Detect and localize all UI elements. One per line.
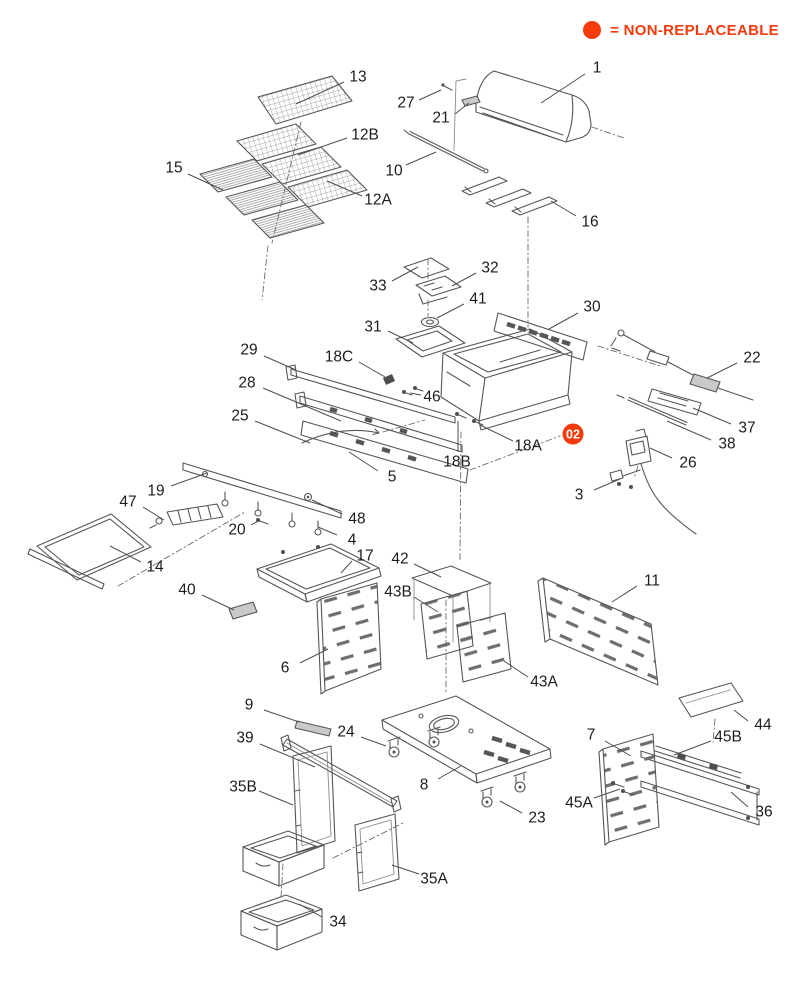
leader-line-26 [650, 448, 672, 458]
part-label-27: 27 [397, 95, 414, 112]
leader-line-19 [171, 473, 207, 486]
part-44-shelf-panel [679, 683, 743, 717]
part-23-casters [481, 772, 526, 807]
part-label-5: 5 [388, 469, 397, 486]
part-label-46: 46 [423, 389, 440, 406]
part-label-43A: 43A [530, 674, 558, 691]
part-label-20: 20 [228, 522, 246, 539]
part-label-6: 6 [281, 660, 290, 677]
part-5-control-panel-support [301, 421, 468, 483]
part-27-bolt [441, 83, 452, 90]
part-label-48: 48 [348, 511, 365, 528]
part-9-handle [295, 721, 331, 736]
part-label-15: 15 [165, 160, 182, 177]
part-3-electrode [610, 470, 640, 489]
part-label-18B: 18B [443, 454, 471, 471]
leader-line-18A [480, 425, 513, 441]
part-label-44: 44 [754, 717, 772, 734]
leader-line-10 [406, 152, 436, 165]
part-label-34: 34 [329, 914, 347, 931]
leader-line-20 [251, 520, 260, 525]
part-31-tray [396, 326, 465, 357]
part-33-lid [404, 258, 449, 278]
part-label-11: 11 [644, 573, 660, 590]
leader-line-8 [438, 766, 461, 779]
part-label-33: 33 [369, 278, 386, 295]
part-47-burner-tube [150, 504, 223, 528]
leader-line-35A [392, 865, 419, 874]
leader-line-38 [667, 421, 711, 440]
part-7-side-panel [599, 734, 659, 845]
part-18c-clip [383, 374, 395, 385]
non-replaceable-marker-label: 02 [566, 428, 580, 442]
part-38-rod [617, 395, 687, 425]
part-41-ring [422, 318, 439, 327]
part-48-grommet [305, 494, 312, 501]
part-label-19: 19 [147, 483, 164, 500]
part-label-38: 38 [718, 436, 735, 453]
leader-line-18C [359, 362, 385, 377]
part-label-3: 3 [575, 487, 584, 504]
part-label-12B: 12B [351, 127, 379, 144]
part-label-37: 37 [738, 420, 755, 437]
part-26-igniter [626, 429, 696, 534]
part-6-side-panel [317, 583, 381, 694]
leader-line-33 [392, 267, 418, 281]
leader-line-29 [264, 356, 296, 370]
leader-line-9 [264, 710, 299, 722]
part-label-10: 10 [385, 163, 403, 180]
leader-line-37 [693, 408, 731, 424]
leader-line-24 [361, 737, 386, 746]
part-label-26: 26 [679, 455, 696, 472]
part-label-36: 36 [755, 804, 772, 821]
part-label-22: 22 [743, 350, 760, 367]
leader-line-11 [612, 586, 637, 602]
part-8-cart-bottom [382, 696, 551, 783]
callout-layer: 131272112B101512A1632334130312918C222846… [110, 60, 773, 931]
part-16-burners [462, 177, 557, 215]
leader-line-21 [455, 103, 469, 114]
leader-line-47 [143, 507, 164, 520]
leader-line-45B [674, 741, 711, 755]
part-label-17: 17 [356, 548, 373, 565]
part-label-32: 32 [481, 260, 498, 277]
part-label-35A: 35A [420, 871, 448, 888]
part-label-14: 14 [146, 559, 164, 576]
part-25-hose [302, 429, 379, 443]
part-label-13: 13 [349, 69, 366, 86]
part-label-9: 9 [245, 697, 254, 714]
leader-line-17 [341, 561, 352, 573]
leader-line-44 [734, 710, 748, 721]
leader-line-3 [594, 479, 620, 490]
part-label-28: 28 [238, 375, 255, 392]
part-11-back-panel [538, 578, 658, 685]
leader-line-35B [259, 791, 293, 805]
part-label-18C: 18C [325, 349, 353, 366]
part-19-manifold [183, 463, 341, 535]
part-label-7: 7 [587, 727, 596, 744]
part-label-40: 40 [178, 582, 196, 599]
part-22-hose-regulator [611, 330, 753, 400]
part-label-45A: 45A [565, 795, 593, 812]
part-label-45B: 45B [714, 729, 742, 746]
part-10-support-rod [404, 130, 488, 173]
part-label-1: 1 [593, 60, 602, 77]
part-35a-door [355, 814, 399, 891]
part-label-21: 21 [432, 110, 449, 127]
part-21-bracket [462, 96, 480, 106]
part-43a-vent-panel [457, 613, 511, 682]
part-label-18A: 18A [514, 438, 542, 455]
leader-line-22 [707, 363, 737, 378]
leader-line-31 [388, 331, 413, 343]
diagram-line-art [28, 71, 759, 950]
part-32-housing [416, 276, 461, 304]
part-label-12A: 12A [364, 192, 392, 209]
part-label-41: 41 [469, 291, 486, 308]
leader-line-41 [437, 304, 464, 318]
part-label-42: 42 [391, 551, 408, 568]
part-label-43B: 43B [384, 584, 412, 601]
part-40-bracket [229, 602, 257, 619]
part-30-vent-panel [494, 313, 587, 360]
part-label-47: 47 [119, 494, 136, 511]
leader-line-23 [500, 801, 522, 813]
part-label-4: 4 [348, 532, 357, 549]
leader-line-16 [551, 201, 576, 216]
part-label-25: 25 [231, 408, 248, 425]
part-label-8: 8 [420, 777, 429, 794]
leader-line-32 [452, 273, 476, 286]
leader-line-40 [202, 595, 234, 610]
exploded-parts-diagram: 131272112B101512A1632334130312918C222846… [0, 0, 798, 1007]
parts-diagram-page: = NON-REPLACEABLE [0, 0, 798, 1007]
part-45b-support-bar [655, 746, 741, 778]
part-label-16: 16 [581, 214, 598, 231]
marker-layer: 02 [563, 424, 584, 445]
leader-line-30 [549, 313, 578, 329]
leader-line-27 [419, 90, 441, 100]
part-label-39: 39 [236, 730, 253, 747]
part-label-30: 30 [583, 299, 601, 316]
part-label-24: 24 [337, 724, 355, 741]
leader-line-48 [312, 500, 342, 514]
part-label-23: 23 [528, 810, 545, 827]
leader-line-36 [731, 792, 748, 807]
part-label-31: 31 [364, 319, 381, 336]
part-18b-screw [455, 412, 466, 418]
leader-line-5 [349, 452, 378, 471]
part-label-35B: 35B [229, 779, 257, 796]
leader-line-1 [541, 74, 585, 103]
part-label-29: 29 [240, 342, 257, 359]
part-37-venturi-tube [648, 389, 701, 415]
